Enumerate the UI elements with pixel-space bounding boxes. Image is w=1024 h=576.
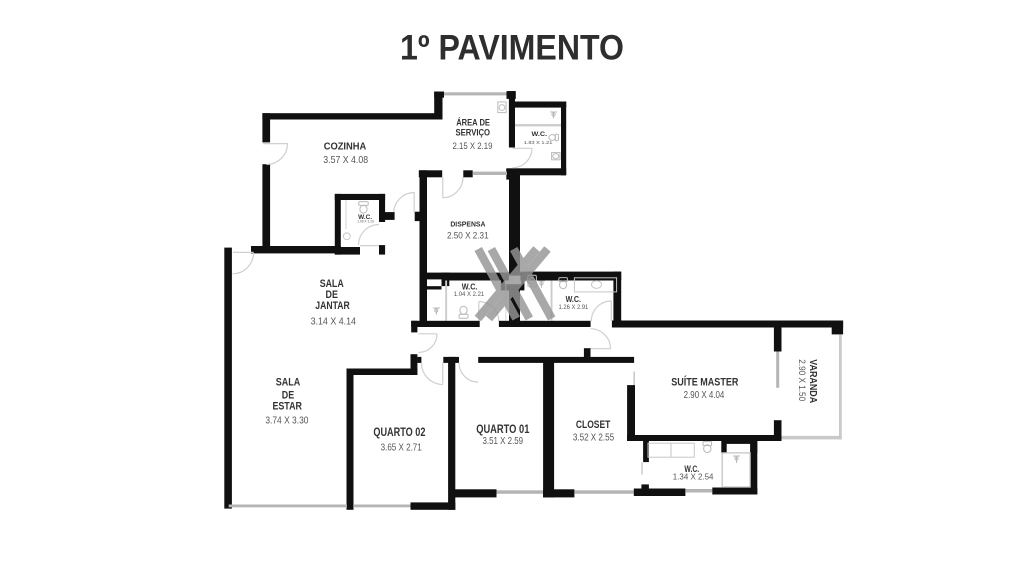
svg-text:1.83 X 1.21: 1.83 X 1.21 xyxy=(524,140,553,145)
svg-text:1.34 X 2.54: 1.34 X 2.54 xyxy=(673,473,714,482)
svg-text:SALA: SALA xyxy=(276,377,301,389)
svg-text:COZINHA: COZINHA xyxy=(324,141,367,152)
svg-text:SUÍTE MASTER: SUÍTE MASTER xyxy=(671,375,738,388)
svg-text:QUARTO 01: QUARTO 01 xyxy=(476,422,529,436)
svg-text:VARANDA: VARANDA xyxy=(807,359,818,403)
svg-text:1.26 X 2.91: 1.26 X 2.91 xyxy=(559,304,589,311)
svg-text:3.57 X 4.08: 3.57 X 4.08 xyxy=(323,155,368,166)
svg-text:2.15 X 2.19: 2.15 X 2.19 xyxy=(453,141,493,151)
svg-text:SERVIÇO: SERVIÇO xyxy=(456,127,491,137)
svg-text:1.04 X 2.21: 1.04 X 2.21 xyxy=(454,291,485,298)
svg-text:ÁREA DE: ÁREA DE xyxy=(456,118,490,128)
svg-text:W.C.: W.C. xyxy=(566,295,581,304)
svg-text:2.90 X 1.50: 2.90 X 1.50 xyxy=(797,359,807,401)
svg-text:JANTAR: JANTAR xyxy=(315,300,350,312)
svg-text:ESTAR: ESTAR xyxy=(272,400,302,412)
svg-text:DISPENSA: DISPENSA xyxy=(450,220,485,229)
svg-text:3.65 X 2.71: 3.65 X 2.71 xyxy=(381,442,422,453)
svg-text:2.90 X 4.04: 2.90 X 4.04 xyxy=(684,390,725,401)
svg-text:2.50 X 2.31: 2.50 X 2.31 xyxy=(447,230,489,241)
svg-text:CLOSET: CLOSET xyxy=(576,419,611,431)
svg-text:W.C.: W.C. xyxy=(532,132,548,138)
svg-text:3.52 X 2.55: 3.52 X 2.55 xyxy=(573,433,615,444)
svg-text:3.14 X 4.14: 3.14 X 4.14 xyxy=(311,317,357,328)
svg-text:3.74 X 3.30: 3.74 X 3.30 xyxy=(265,415,308,426)
svg-text:3.51 X 2.59: 3.51 X 2.59 xyxy=(483,436,524,447)
svg-text:QUARTO 02: QUARTO 02 xyxy=(373,425,425,439)
svg-text:1.09 X 1.19: 1.09 X 1.19 xyxy=(357,220,374,224)
svg-text:1º PAVIMENTO: 1º PAVIMENTO xyxy=(400,29,624,68)
